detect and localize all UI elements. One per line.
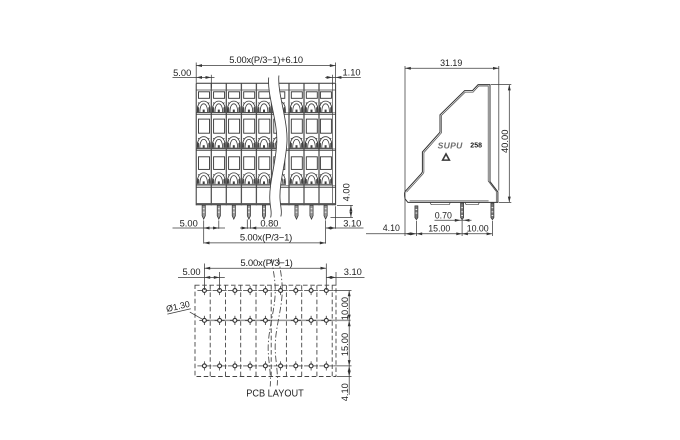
svg-text:40.00: 40.00: [499, 130, 510, 153]
svg-text:5.00: 5.00: [173, 68, 191, 78]
svg-text:3.10: 3.10: [343, 218, 361, 228]
svg-text:15.00: 15.00: [340, 333, 350, 356]
svg-text:0.80: 0.80: [260, 218, 278, 228]
svg-text:PCB LAYOUT: PCB LAYOUT: [246, 389, 304, 400]
svg-text:1.10: 1.10: [342, 67, 360, 77]
svg-text:4.10: 4.10: [383, 223, 400, 233]
svg-text:31.19: 31.19: [440, 58, 462, 68]
svg-text:3.10: 3.10: [344, 267, 362, 277]
svg-text:5.00x(P/3−1)+6.10: 5.00x(P/3−1)+6.10: [229, 55, 303, 65]
svg-text:10.00: 10.00: [467, 224, 489, 234]
svg-text:4.10: 4.10: [340, 383, 350, 401]
svg-text:5.00x(P/3−1): 5.00x(P/3−1): [240, 258, 292, 269]
svg-text:0.70: 0.70: [435, 210, 452, 220]
svg-text:10.00: 10.00: [340, 297, 350, 320]
svg-text:SUPU: SUPU: [438, 140, 464, 150]
svg-text:5.00: 5.00: [182, 267, 200, 277]
svg-text:15.00: 15.00: [428, 224, 450, 234]
svg-text:4.00: 4.00: [342, 183, 352, 201]
svg-text:258: 258: [470, 143, 482, 150]
svg-text:5.00: 5.00: [180, 218, 198, 228]
svg-text:5.00x(P/3−1): 5.00x(P/3−1): [240, 232, 292, 243]
